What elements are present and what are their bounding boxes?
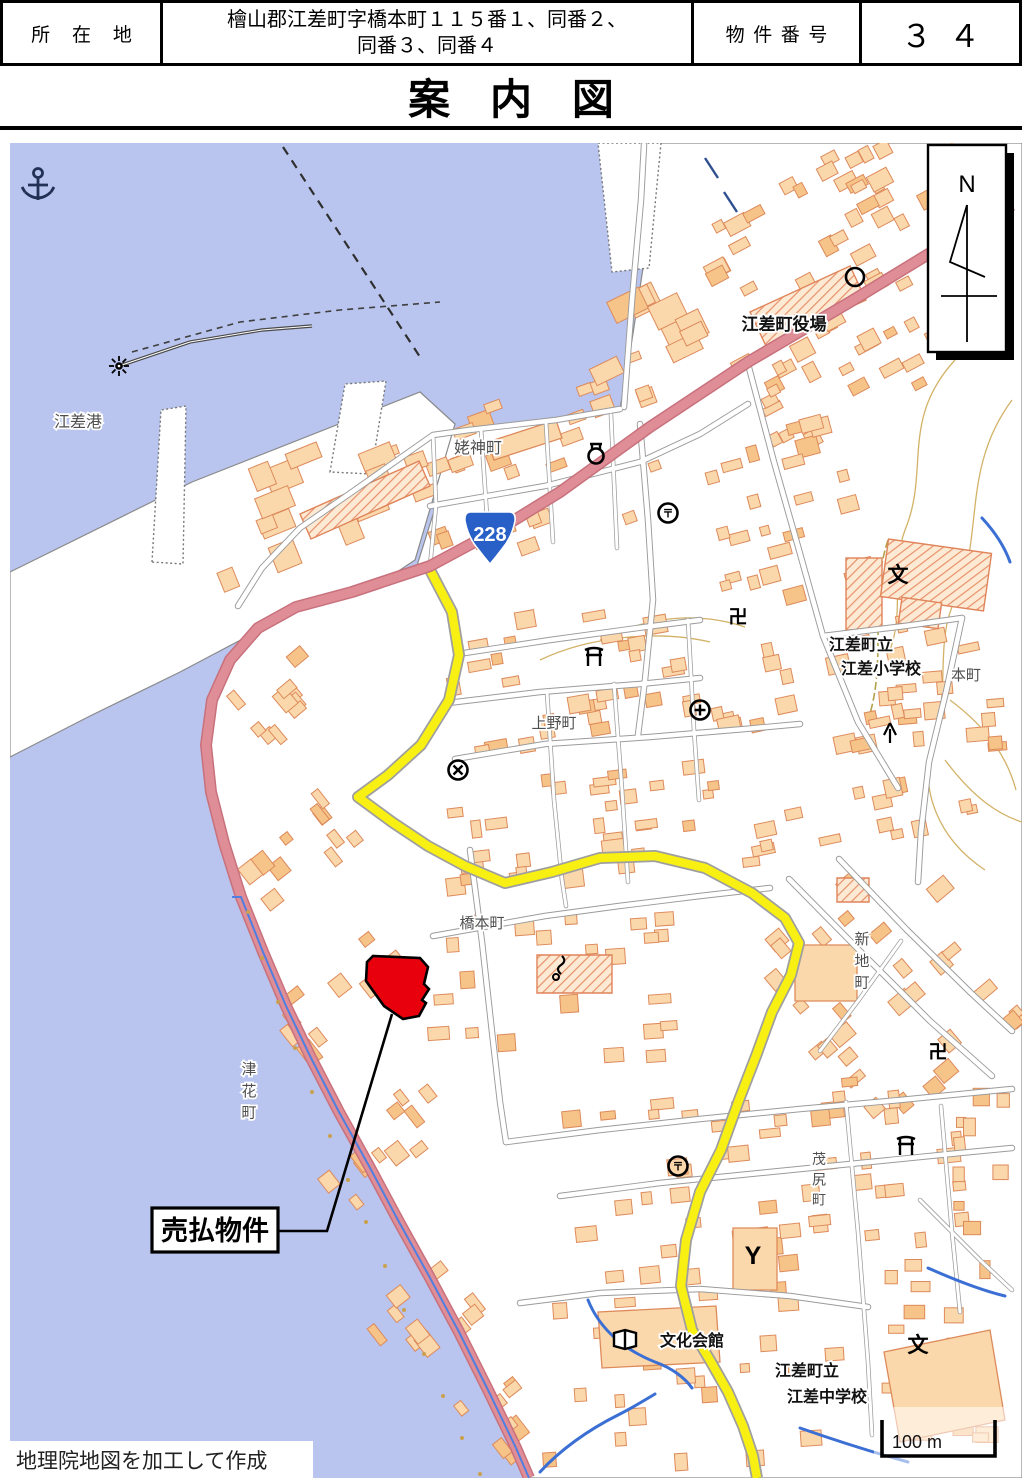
svg-text:Y: Y [745, 1242, 762, 1270]
svg-text:文: 文 [888, 563, 910, 587]
compass: N [928, 145, 1014, 360]
page-title-text: 案内図 [368, 66, 654, 127]
map-canvas: 〒卍文卍〒Y文 江差港姥神町江差町役場本町江差町立江差小学校上野町橋本町新地町津… [10, 143, 1022, 1478]
fire-station-icon: Y [745, 1242, 762, 1270]
guide-map-document: 所在地 檜山郡江差町字橋本町１１５番１、同番２、 同番３、同番４ 物件番号 ３４… [0, 0, 1022, 1478]
map-label-esashi-town-hall: 江差町役場 [742, 314, 827, 334]
page-title: 案内図 [0, 66, 1022, 130]
map-label-tsubana-cho: 津花町 [241, 1061, 256, 1122]
map-label-esashi-elementary-1: 江差町立 [829, 635, 893, 654]
school-icon: 文 [908, 1333, 930, 1357]
map-label-esashi-port: 江差港 [54, 413, 102, 431]
map-label-esashi-jhs-2: 江差中学校 [787, 1387, 868, 1406]
temple-icon: 卍 [928, 1042, 947, 1063]
lighthouse-icon [109, 356, 129, 376]
library-icon [614, 1330, 636, 1349]
svg-text:〒: 〒 [673, 1160, 684, 1173]
map-label-esashi-jhs-1: 江差町立 [775, 1361, 839, 1380]
svg-text:卍: 卍 [728, 607, 747, 628]
address-line-2: 同番３、同番４ [357, 33, 497, 59]
address-line-1: 檜山郡江差町字橋本町１１５番１、同番２、 [227, 7, 627, 33]
property-number-value: ３４ [859, 3, 1019, 63]
map-label-hon-cho: 本町 [951, 667, 981, 684]
scale-bar: 100 m [874, 1407, 1008, 1465]
property-callout-label: 売払物件 [161, 1216, 269, 1246]
location-address: 檜山郡江差町字橋本町１１５番１、同番２、 同番３、同番４ [160, 3, 691, 63]
location-label: 所在地 [3, 3, 160, 63]
map-label-hashimoto-cho: 橋本町 [459, 915, 504, 932]
attribution-text: 地理院地図を加工して作成 [16, 1450, 267, 1473]
guide-map: 〒卍文卍〒Y文 江差港姥神町江差町役場本町江差町立江差小学校上野町橋本町新地町津… [10, 143, 1022, 1478]
map-label-moshiri-cho: 茂尻町 [812, 1151, 826, 1208]
compass-north-letter: N [958, 171, 975, 198]
svg-text:卍: 卍 [928, 1042, 947, 1063]
school-icon: 文 [888, 563, 910, 587]
svg-text:〒: 〒 [663, 507, 674, 520]
map-label-ubagami-cho: 姥神町 [454, 439, 502, 457]
header-table: 所在地 檜山郡江差町字橋本町１１５番１、同番２、 同番３、同番４ 物件番号 ３４ [0, 0, 1022, 66]
property-number-label: 物件番号 [691, 3, 859, 63]
map-label-ueno-cho: 上野町 [531, 715, 576, 732]
map-attribution: 地理院地図を加工して作成 [10, 1441, 313, 1478]
map-label-shinchi-cho: 新地町 [854, 931, 869, 992]
scale-label: 100 m [892, 1432, 942, 1452]
svg-text:文: 文 [908, 1333, 930, 1357]
map-label-culture-hall: 文化会館 [660, 1331, 724, 1350]
route-228-number: 228 [473, 524, 506, 546]
map-label-esashi-elementary-2: 江差小学校 [841, 659, 922, 678]
temple-icon: 卍 [728, 607, 747, 628]
property-callout: 売払物件 [152, 1208, 278, 1252]
